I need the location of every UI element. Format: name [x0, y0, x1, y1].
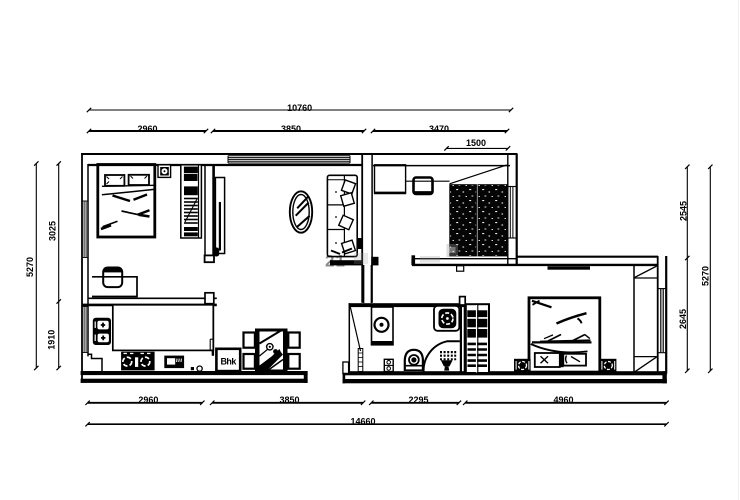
- svg-text:3025: 3025: [48, 221, 58, 241]
- svg-text:5270: 5270: [25, 257, 35, 277]
- svg-text:10760: 10760: [287, 103, 312, 113]
- svg-text:2960: 2960: [137, 124, 157, 134]
- svg-text:5270: 5270: [701, 266, 711, 286]
- svg-text:3470: 3470: [429, 124, 449, 134]
- svg-text:21: 21: [325, 252, 346, 271]
- svg-text:4960: 4960: [553, 395, 573, 405]
- svg-text:2960: 2960: [138, 395, 158, 405]
- svg-text:3850: 3850: [281, 124, 301, 134]
- svg-text:2295: 2295: [408, 395, 428, 405]
- svg-text:14660: 14660: [350, 417, 375, 427]
- svg-text:2645: 2645: [678, 309, 688, 329]
- svg-text:1910: 1910: [46, 330, 56, 350]
- svg-text:1500: 1500: [466, 138, 486, 148]
- svg-text:2545: 2545: [679, 201, 689, 221]
- svg-text:3850: 3850: [279, 395, 299, 405]
- svg-text:Bhk: Bhk: [220, 357, 237, 367]
